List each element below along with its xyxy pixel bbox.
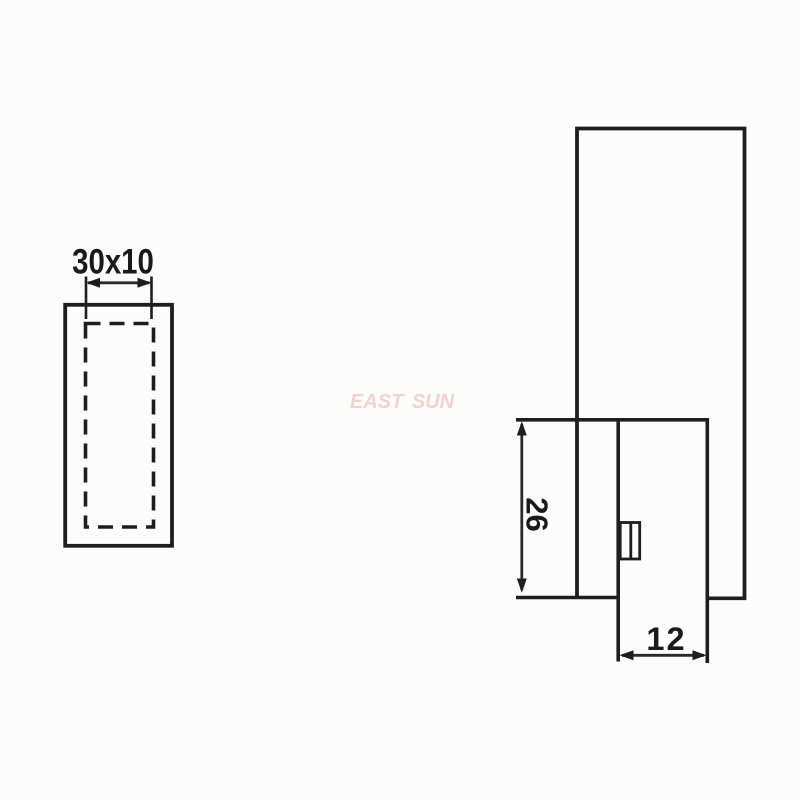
svg-text:12: 12	[646, 621, 686, 657]
svg-text:EAST SUN: EAST SUN	[350, 391, 455, 413]
svg-text:26: 26	[520, 497, 555, 531]
svg-text:30x10: 30x10	[72, 242, 154, 281]
